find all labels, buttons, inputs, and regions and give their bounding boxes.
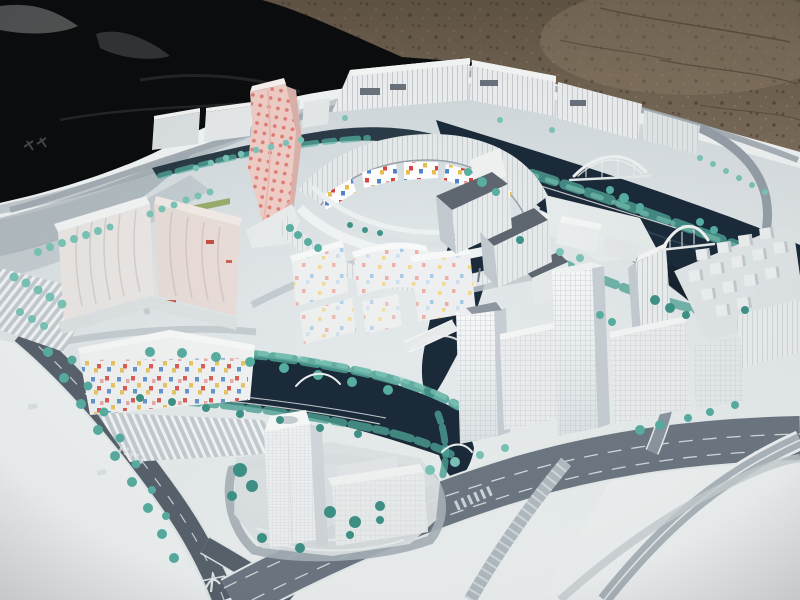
photo-vignette bbox=[0, 0, 800, 600]
model-photograph bbox=[0, 0, 800, 600]
